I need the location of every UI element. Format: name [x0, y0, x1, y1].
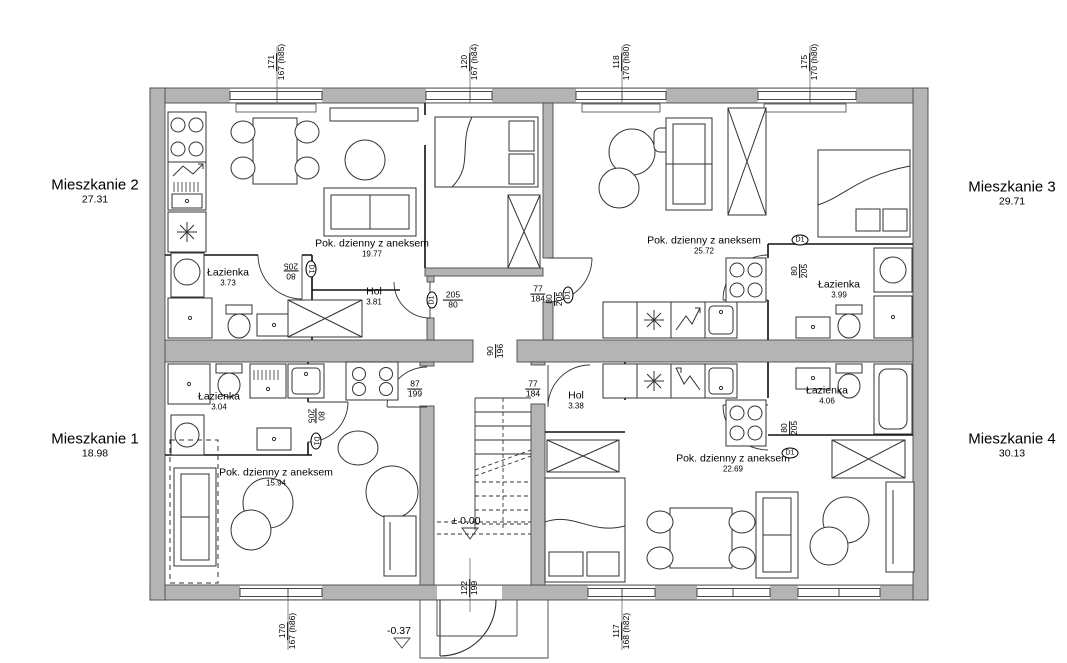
- door-tag-m2-entry: D1: [427, 292, 438, 309]
- level-marker-ground-triangle: [462, 528, 478, 539]
- m2-coffee-table: [345, 140, 385, 180]
- room-label-m1-living: Pok. dzienny z aneksem15.94: [219, 468, 333, 489]
- dim-bottom-window-1: 170167 (h86): [278, 611, 298, 651]
- m4-dining-table: [670, 508, 732, 568]
- m4-stove: [726, 400, 766, 446]
- room-label-m3-living: Pok. dzienny z aneksem25.72: [647, 236, 761, 257]
- m1-toilet: [216, 364, 242, 373]
- door-tag-m3-entry: D1: [563, 287, 574, 304]
- apartment3-label: Mieszkanie 3 29.71: [968, 180, 1056, 209]
- room-label-m1-bath: Łazienka3.04: [198, 392, 240, 413]
- m3-asterisk-icon: [644, 310, 664, 330]
- m4-asterisk-icon: [644, 371, 664, 391]
- dim-corridor-opening: 90196: [486, 342, 506, 360]
- m2-fridge-asterisk-icon: [177, 222, 197, 242]
- apartment3-furniture: [599, 108, 912, 338]
- room-label-m3-bath: Łazienka3.99: [818, 280, 860, 301]
- apartment2-label: Mieszkanie 2 27.31: [51, 178, 139, 207]
- floor-plan-drawing: [0, 0, 1067, 663]
- apartment4-label: Mieszkanie 4 30.13: [968, 432, 1056, 461]
- door-label-m3-bath: 80205: [790, 262, 810, 280]
- m1-cabinet: [384, 516, 416, 576]
- m3-armchair2: [599, 168, 639, 208]
- dim-top-window-4: 175170 (h80): [800, 42, 820, 82]
- room-label-m2-bath: Łazienka3.73: [207, 268, 249, 289]
- level-marker-outside-triangle: [394, 638, 410, 648]
- m1-washer: [250, 364, 286, 398]
- m3-toilet: [836, 305, 862, 314]
- m1-chair: [338, 431, 378, 465]
- entrance-porch: [394, 600, 548, 658]
- m2-dining-table: [253, 118, 297, 184]
- dim-entrance-door: 122199: [460, 579, 480, 597]
- apartment1-label: Mieszkanie 1 18.98: [51, 432, 139, 461]
- door-label-m2-bath: 80205: [283, 262, 298, 281]
- dim-bottom-window-2: 117168 (h82): [612, 611, 632, 651]
- m2-toilet: [226, 305, 252, 314]
- dim-top-window-1: 171167 (h85): [267, 42, 287, 82]
- m2-shelf: [330, 108, 418, 121]
- opening-label-m1-entry: 87199: [407, 380, 422, 399]
- room-label-m4-bath: Łazienka4.06: [806, 386, 848, 407]
- door-tag-m1-bath: D1: [311, 433, 322, 450]
- level-outside: -0.37: [387, 625, 411, 637]
- door-label-m4-bath: 80205: [780, 419, 800, 437]
- room-label-m4-living: Pok. dzienny z aneksem22.69: [676, 454, 790, 475]
- floor-plan-canvas: Mieszkanie 2 27.31 Mieszkanie 1 18.98 Mi…: [0, 0, 1067, 663]
- dim-top-window-2: 120167 (h84): [460, 42, 480, 82]
- door-label-m1-bath: 80205: [307, 408, 326, 423]
- apartment2-furniture: [168, 108, 540, 338]
- m4-toilet: [836, 364, 862, 373]
- door-tag-m2-bath: D1: [306, 261, 317, 278]
- room-label-m2-living: Pok. dzienny z aneksem19.77: [315, 239, 429, 260]
- dim-top-window-3: 118170 (h80): [612, 42, 632, 82]
- m1-armchair2: [231, 510, 271, 550]
- door-tag-m4-bath: D1: [782, 448, 799, 459]
- m1-round-table: [366, 466, 418, 518]
- room-label-m2-hol: Hol3.81: [366, 287, 382, 308]
- door-tag-m3-bath: D1: [792, 235, 809, 246]
- m4-cabinet: [886, 482, 914, 572]
- opening-label-m4-entry: 77184: [525, 380, 540, 399]
- m2-washbasin: [171, 253, 204, 297]
- level-ground: ± 0.00: [451, 515, 480, 527]
- room-label-m4-hol: Hol3.38: [568, 391, 584, 412]
- m4-pouf2: [810, 527, 848, 565]
- door-label-m2-entry: 20580: [443, 291, 463, 310]
